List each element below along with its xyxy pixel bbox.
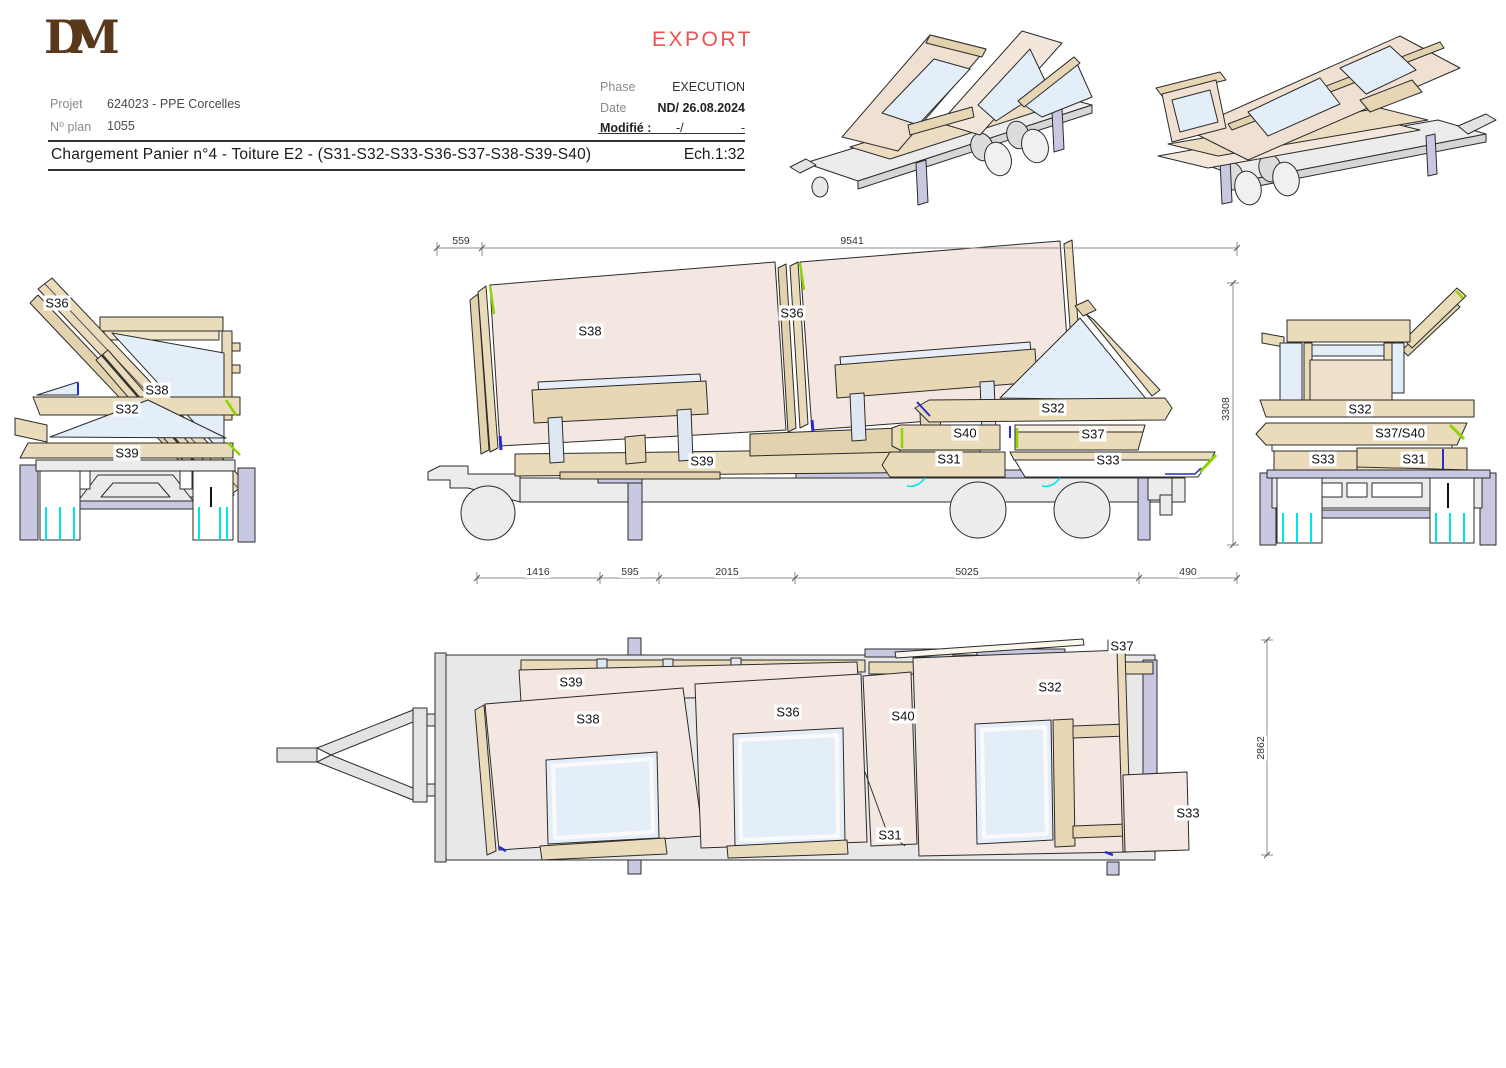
front-trailer bbox=[20, 460, 255, 542]
plan-label-s36: S36 bbox=[774, 705, 801, 720]
rear-label-s32: S32 bbox=[1346, 402, 1373, 417]
rear-elevation-view bbox=[1252, 265, 1502, 555]
front-label-s36: S36 bbox=[43, 296, 70, 311]
project-label: Projet bbox=[50, 97, 83, 111]
dim-plan-width: 2862 bbox=[1255, 735, 1267, 760]
drawing-sheet: DM EXPORT Projet 624023 - PPE Corcelles … bbox=[0, 0, 1506, 1068]
side-panel-s38 bbox=[470, 262, 786, 464]
rear-label-s33: S33 bbox=[1309, 452, 1336, 467]
side-label-s39: S39 bbox=[688, 454, 715, 469]
dim-bottom-2: 595 bbox=[620, 566, 640, 578]
side-label-s38: S38 bbox=[576, 324, 603, 339]
dim-bottom-5: 490 bbox=[1178, 566, 1198, 578]
front-label-s38: S38 bbox=[143, 383, 170, 398]
export-stamp: EXPORT bbox=[652, 28, 753, 52]
plan-view bbox=[265, 622, 1275, 872]
plan-load bbox=[475, 639, 1189, 860]
project-value: 624023 - PPE Corcelles bbox=[107, 97, 240, 111]
title-rule-top bbox=[48, 140, 745, 142]
plan-no-value: 1055 bbox=[107, 119, 135, 133]
dim-top-left: 559 bbox=[451, 235, 471, 247]
front-label-s39: S39 bbox=[113, 446, 140, 461]
rear-label-s31: S31 bbox=[1400, 452, 1427, 467]
side-label-s40: S40 bbox=[951, 426, 978, 441]
front-label-s32: S32 bbox=[113, 402, 140, 417]
modified-underline bbox=[598, 133, 745, 134]
plan-label-s37: S37 bbox=[1108, 639, 1135, 654]
iso-view-rear bbox=[1128, 8, 1500, 218]
plan-label-s38: S38 bbox=[574, 712, 601, 727]
sheet-scale: Ech.1:32 bbox=[600, 146, 745, 164]
dim-bottom-1: 1416 bbox=[525, 566, 550, 578]
side-label-s36: S36 bbox=[778, 306, 805, 321]
dim-bottom-3: 2015 bbox=[714, 566, 739, 578]
plan-label-s33: S33 bbox=[1174, 806, 1201, 821]
rear-panels bbox=[1256, 288, 1474, 470]
side-label-s32: S32 bbox=[1039, 401, 1066, 416]
side-label-s33: S33 bbox=[1094, 453, 1121, 468]
rear-label-s37s40: S37/S40 bbox=[1373, 426, 1427, 441]
side-label-s37: S37 bbox=[1079, 427, 1106, 442]
rear-trailer bbox=[1260, 470, 1496, 545]
iso-view-front bbox=[790, 5, 1140, 210]
date-value: ND/ 26.08.2024 bbox=[600, 101, 745, 115]
plan-label-s31: S31 bbox=[876, 828, 903, 843]
phase-value: EXECUTION bbox=[600, 80, 745, 94]
dim-top-total: 9541 bbox=[839, 235, 864, 247]
title-rule-bottom bbox=[48, 169, 745, 171]
plan-label-s32: S32 bbox=[1036, 680, 1063, 695]
plan-label-s39: S39 bbox=[557, 675, 584, 690]
plan-no-label: N⁰ plan bbox=[50, 119, 91, 134]
dim-bottom-4: 5025 bbox=[954, 566, 979, 578]
company-logo-monogram: DM bbox=[44, 10, 105, 64]
dim-side-height: 3308 bbox=[1220, 396, 1232, 421]
side-elevation-view bbox=[420, 222, 1250, 592]
plan-label-s40: S40 bbox=[889, 709, 916, 724]
sheet-title: Chargement Panier n°4 - Toiture E2 - (S3… bbox=[51, 146, 591, 164]
side-label-s31: S31 bbox=[935, 452, 962, 467]
